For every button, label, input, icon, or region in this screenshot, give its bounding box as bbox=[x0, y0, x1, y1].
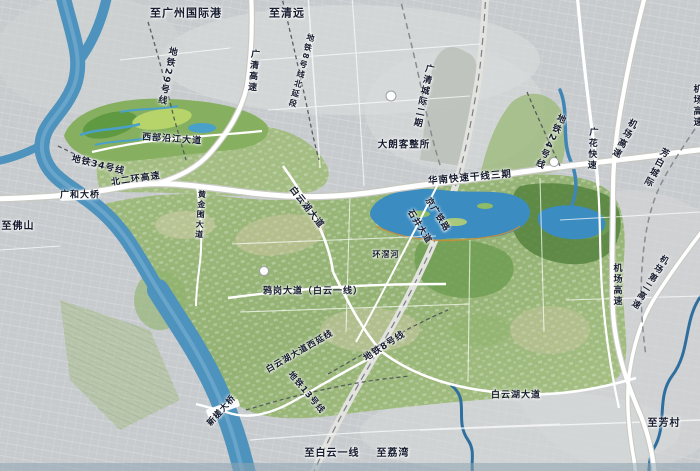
planning-map: 至广州国际港至清远地铁29号线广清高速地铁8号线北延段广清城际二期地铁24号线广… bbox=[0, 0, 700, 471]
bottom-shore-strip bbox=[0, 463, 700, 471]
map-artwork bbox=[0, 0, 700, 471]
